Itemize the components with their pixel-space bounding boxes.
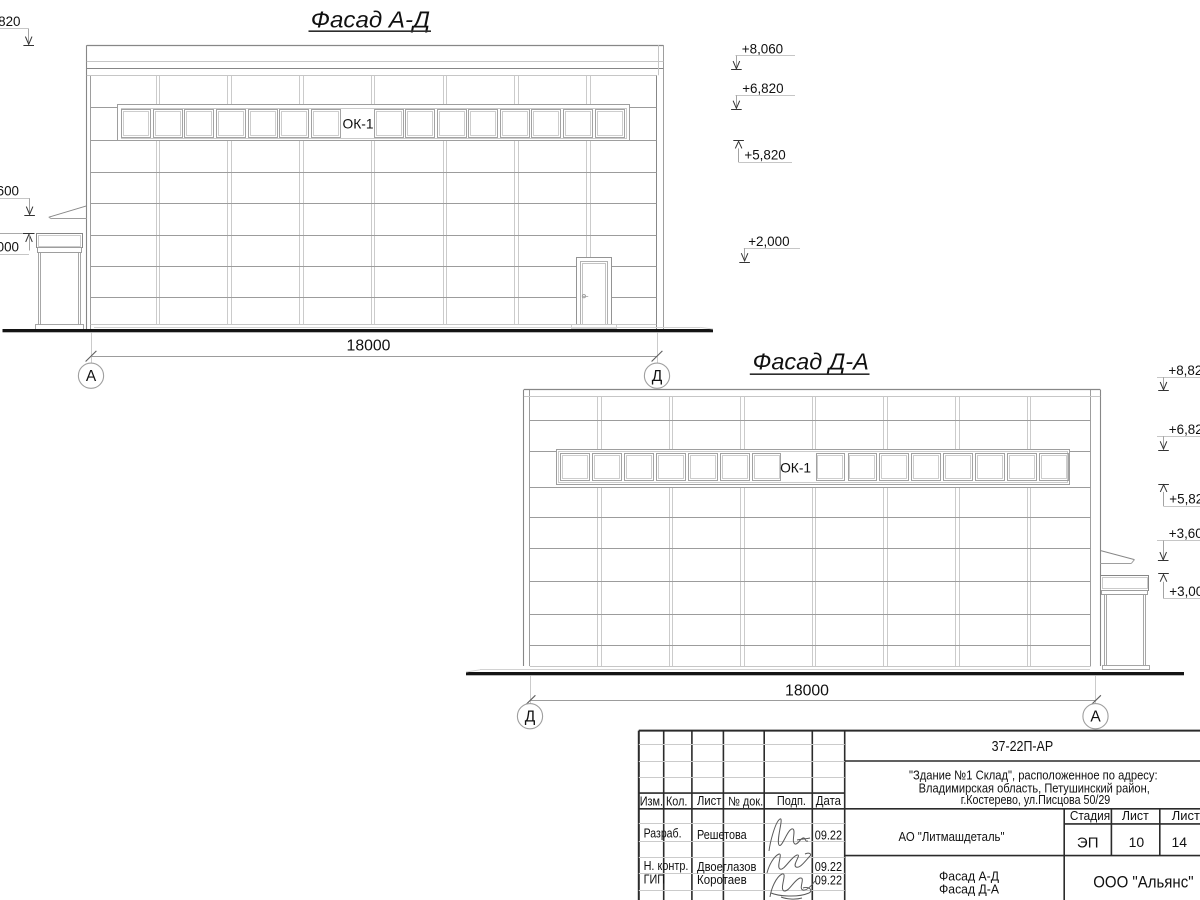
svg-text:Фасад Д-А: Фасад Д-А	[753, 348, 869, 374]
svg-text:37-22П-АР: 37-22П-АР	[992, 739, 1054, 755]
svg-text:+2,000: +2,000	[748, 234, 789, 249]
svg-text:Дата: Дата	[816, 794, 841, 808]
svg-text:ООО "Альянс": ООО "Альянс"	[1093, 872, 1193, 891]
svg-text:14: 14	[1172, 834, 1188, 850]
svg-text:Подп.: Подп.	[777, 794, 806, 808]
svg-text:Лист: Лист	[1122, 809, 1149, 823]
svg-text:ЭП: ЭП	[1077, 834, 1099, 851]
svg-text:09.22: 09.22	[815, 827, 842, 842]
svg-text:Д: Д	[652, 368, 663, 385]
svg-text:Коротаев: Коротаев	[697, 873, 747, 887]
svg-text:А: А	[1090, 709, 1101, 726]
svg-text:ОК-1: ОК-1	[780, 460, 811, 475]
svg-text:Решетова: Решетова	[697, 828, 747, 842]
svg-text:Кол.: Кол.	[666, 795, 687, 809]
svg-text:АО "Литмашдеталь": АО "Литмашдеталь"	[899, 829, 1005, 844]
svg-text:Листов: Листов	[1172, 809, 1200, 823]
svg-text:10: 10	[1129, 834, 1145, 850]
svg-text:+6,820: +6,820	[1169, 422, 1200, 437]
svg-text:+3,000: +3,000	[1169, 584, 1200, 599]
svg-text:Изм.: Изм.	[640, 795, 663, 809]
svg-text:+3,600: +3,600	[1169, 526, 1200, 541]
svg-text:Фасад А-Д: Фасад А-Д	[311, 6, 430, 32]
svg-text:Разраб.: Разраб.	[644, 827, 682, 841]
svg-text:Стадия: Стадия	[1070, 809, 1110, 823]
svg-text:+8,820: +8,820	[1168, 363, 1200, 378]
svg-text:А: А	[86, 368, 97, 385]
svg-text:+5,820: +5,820	[744, 147, 785, 162]
svg-text:ОК-1: ОК-1	[342, 116, 373, 131]
svg-text:09.22: 09.22	[815, 872, 842, 887]
svg-text:Лист: Лист	[697, 794, 721, 808]
svg-text:Д: Д	[525, 709, 536, 726]
svg-text:820: 820	[0, 14, 21, 29]
svg-text:Н. контр.: Н. контр.	[644, 859, 689, 873]
svg-text:600: 600	[0, 184, 19, 199]
svg-text:18000: 18000	[785, 683, 829, 700]
svg-text:ГИП: ГИП	[644, 872, 665, 886]
svg-text:Двоеглазов: Двоеглазов	[697, 860, 757, 874]
svg-text:18000: 18000	[347, 337, 391, 354]
svg-text:№ док.: № док.	[728, 795, 763, 809]
svg-text:+6,820: +6,820	[742, 81, 783, 96]
svg-text:+8,060: +8,060	[742, 41, 783, 56]
svg-text:000: 000	[0, 239, 19, 254]
svg-text:г.Костерево, ул.Писцова 50/29: г.Костерево, ул.Писцова 50/29	[961, 792, 1111, 807]
svg-text:+5,820: +5,820	[1169, 491, 1200, 506]
svg-text:Фасад Д-А: Фасад Д-А	[939, 882, 999, 897]
